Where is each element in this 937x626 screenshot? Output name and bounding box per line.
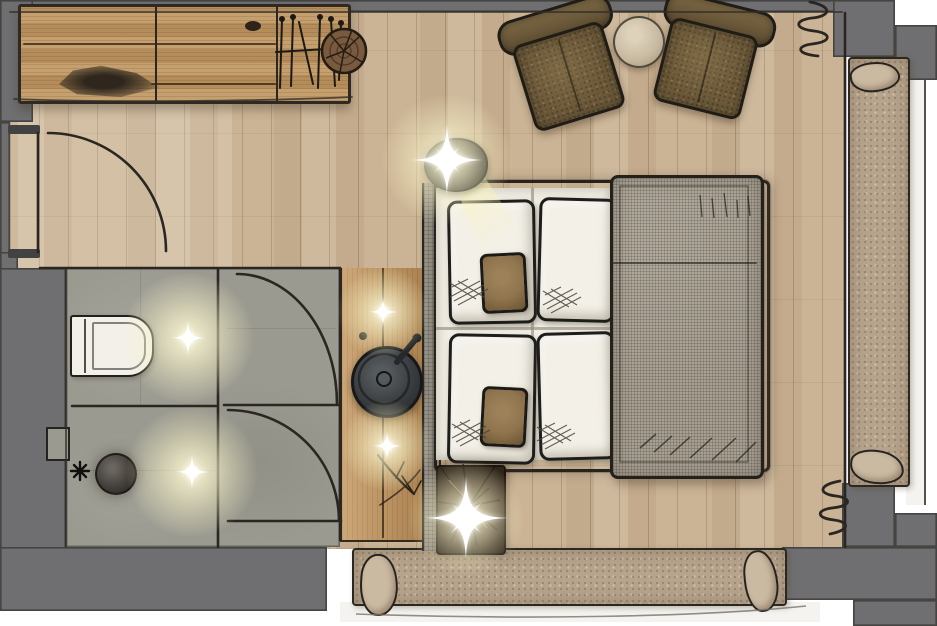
duvet (610, 175, 764, 479)
wall-left-door-jamb (0, 122, 10, 254)
wood-crack (23, 43, 276, 45)
wall-top-right (833, 0, 895, 57)
side-table (613, 16, 665, 68)
shower-head (95, 453, 137, 495)
wall-bottom-right-b (895, 513, 937, 547)
sideboard (18, 4, 351, 104)
pillow (536, 197, 617, 323)
accent-pillow (479, 386, 528, 448)
pillow (536, 331, 617, 461)
wall-niche (46, 427, 70, 461)
wall-bottom-right-a (842, 483, 895, 547)
toilet (70, 315, 154, 377)
balcony-bench-bottom (352, 548, 787, 606)
bathroom-floor (66, 268, 340, 547)
wall-bottom (0, 547, 327, 611)
sideboard-divider (276, 7, 278, 101)
wood-crack (151, 83, 276, 85)
wall-bottom-right-d (853, 600, 937, 626)
accent-pillow (479, 252, 528, 314)
door-stop-bottom (8, 249, 40, 258)
entry-hall-floor (18, 98, 232, 268)
tile-seam (66, 470, 216, 471)
wall-bottom-right-c (782, 547, 937, 600)
sideboard-divider (155, 7, 157, 101)
wall-bathroom-left (0, 268, 66, 550)
door-stop-top (8, 125, 40, 134)
balcony-bench-right (848, 57, 910, 487)
wall-lamp (424, 138, 488, 192)
floor-plan (0, 0, 937, 626)
washbasin (351, 346, 423, 418)
bark-patch (59, 63, 159, 97)
tile-seam (226, 328, 336, 329)
wood-knot (245, 21, 261, 31)
trunk-slice-mat (436, 465, 506, 555)
